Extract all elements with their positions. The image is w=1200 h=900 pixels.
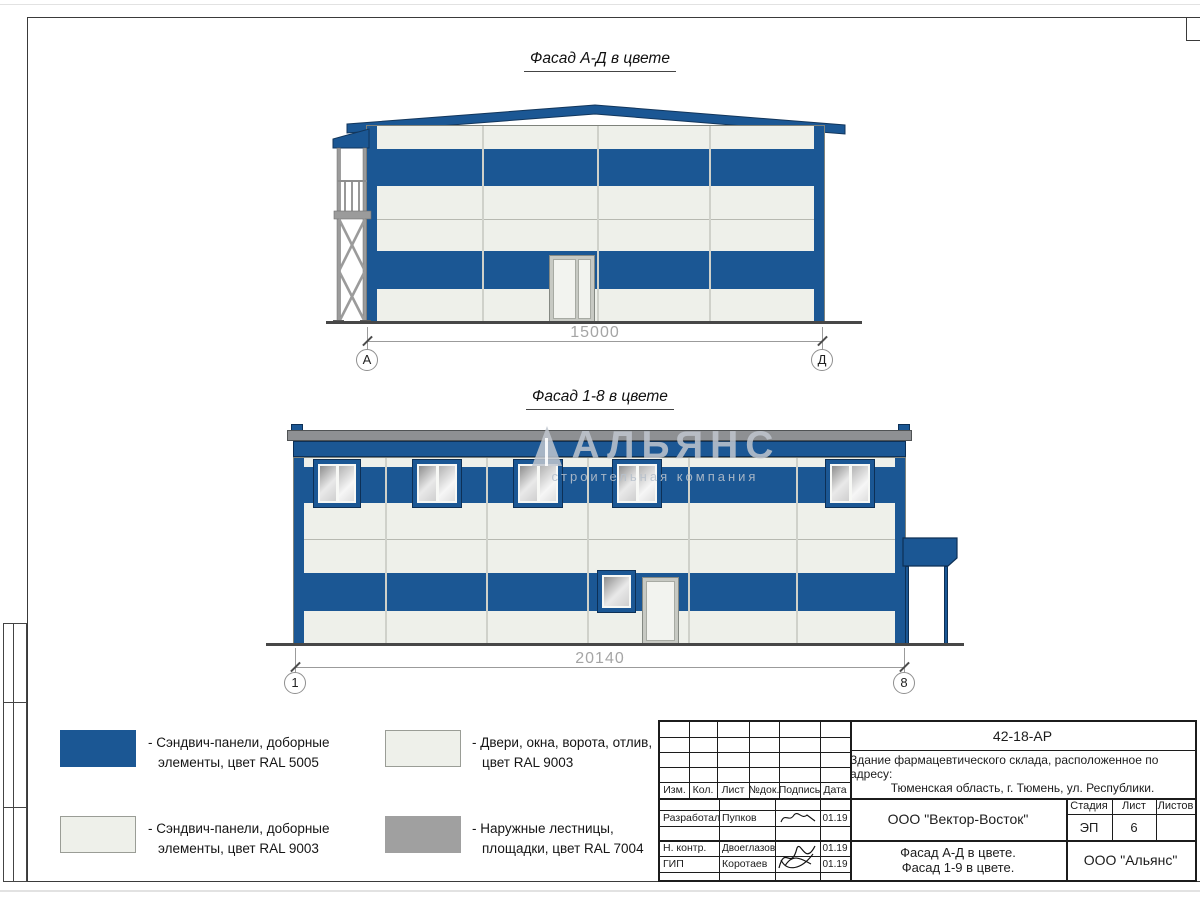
door-leaf xyxy=(646,581,675,641)
axis-bubble-a: А xyxy=(356,349,378,371)
tb-header-data: Дата xyxy=(820,782,850,798)
title-block: Изм. Кол. Лист №док. Подпись Дата Разраб… xyxy=(658,720,1197,882)
tb-project-line2: Тюменская область, г. Тюмень, ул. Респуб… xyxy=(891,781,1155,795)
tb-sheet-header: Лист xyxy=(1112,798,1156,814)
dimension-value: 20140 xyxy=(525,650,675,668)
panel-stripe-blue xyxy=(367,251,824,289)
legend-item: - Сэндвич-панели, доборные элементы, цве… xyxy=(148,733,343,772)
tb-role-ncontr: Н. контр. xyxy=(660,840,719,856)
tb-date-developed: 01.19 xyxy=(820,810,850,826)
legend-swatch-ral5005 xyxy=(60,730,136,767)
legend-swatch-ral7004 xyxy=(385,816,461,853)
panel-joint xyxy=(486,458,488,644)
tb-date-ncontr: 01.19 xyxy=(820,840,850,856)
window xyxy=(412,459,462,508)
axis-bubble-8: 8 xyxy=(893,672,915,694)
tb-date-gip: 01.19 xyxy=(820,856,850,872)
extension-line xyxy=(295,648,296,675)
tb-stage-value: ЭП xyxy=(1066,814,1112,840)
drawing-sheet: Фасад А-Д в цвете xyxy=(0,0,1200,900)
legend-item: - Наружные лестницы, площадки, цвет RAL … xyxy=(472,819,672,858)
page-edge-bottom xyxy=(0,890,1200,892)
tb-org-customer: ООО "Альянс" xyxy=(1066,840,1195,880)
panel-joint xyxy=(709,126,711,322)
facade-18-wall xyxy=(293,457,906,645)
panel-joint xyxy=(482,126,484,322)
tb-stage-header: Стадия xyxy=(1066,798,1112,814)
tb-sheets-value xyxy=(1156,814,1195,840)
signature xyxy=(777,810,820,826)
door-leaf xyxy=(553,259,576,319)
tb-project-line1: Здание фармацевтического склада, располо… xyxy=(850,753,1195,781)
canopy-post xyxy=(905,566,909,645)
legend-item: - Сэндвич-панели, доборные элементы, цве… xyxy=(148,819,343,858)
tb-header-podpis: Подпись xyxy=(779,782,820,798)
stair-tower xyxy=(329,126,375,328)
tb-org-contractor: ООО "Вектор-Восток" xyxy=(850,798,1066,840)
tb-drawing-title-line1: Фасад А-Д в цвете. xyxy=(900,845,1016,860)
tb-name-ncontr: Двоеглазов xyxy=(719,840,775,856)
side-stamp xyxy=(3,623,27,882)
tb-project: Здание фармацевтического склада, располо… xyxy=(850,750,1195,798)
window xyxy=(825,459,875,508)
tb-drawing-title-line2: Фасад 1-9 в цвете. xyxy=(902,860,1015,875)
tb-name-gip: Коротаев xyxy=(719,856,775,872)
panel-stripe-blue xyxy=(367,149,824,186)
tb-header-izm: Изм. xyxy=(660,782,689,798)
tb-header-ndok: №док. xyxy=(749,782,779,798)
tb-header-kol: Кол. xyxy=(689,782,717,798)
frame-corner-box xyxy=(1186,18,1200,41)
door-leaf xyxy=(578,259,591,319)
window xyxy=(313,459,361,508)
panel-joint xyxy=(385,458,387,644)
tb-doc-number: 42-18-АР xyxy=(850,722,1195,750)
window xyxy=(513,459,563,508)
corner-trim xyxy=(294,458,304,644)
tb-drawing-title: Фасад А-Д в цвете. Фасад 1-9 в цвете. xyxy=(850,840,1066,880)
tb-sheets-header: Листов xyxy=(1156,798,1195,814)
signature xyxy=(773,840,820,876)
window-small xyxy=(597,570,636,613)
panel-joint xyxy=(367,219,824,220)
entrance-door-double xyxy=(549,255,595,323)
panel-joint xyxy=(796,458,798,644)
panel-joint xyxy=(587,458,589,644)
tb-header-list: Лист xyxy=(717,782,749,798)
facade-ad-wall xyxy=(366,125,825,323)
panel-joint xyxy=(688,458,690,644)
facade-ad-title: Фасад А-Д в цвете xyxy=(450,50,750,72)
axis-bubble-1: 1 xyxy=(284,672,306,694)
tb-sheet-value: 6 xyxy=(1112,814,1156,840)
entrance-door xyxy=(642,577,679,645)
legend-swatch-doors xyxy=(385,730,461,767)
legend-swatch-ral9003 xyxy=(60,816,136,853)
legend-item: - Двери, окна, ворота, отлив, цвет RAL 9… xyxy=(472,733,672,772)
canopy-post xyxy=(944,566,948,645)
roof-coping xyxy=(287,430,912,441)
window xyxy=(612,459,662,508)
dimension-value: 15000 xyxy=(520,324,670,342)
fascia-band xyxy=(293,441,906,457)
tb-role-gip: ГИП xyxy=(660,856,719,872)
panel-joint xyxy=(597,126,599,322)
page-edge-top xyxy=(0,4,1200,5)
ground-line xyxy=(266,643,964,646)
tb-role-developed: Разработал xyxy=(660,810,719,826)
corner-trim xyxy=(814,126,824,322)
tb-name-developed: Пупков xyxy=(719,810,775,826)
extension-line xyxy=(904,648,905,675)
facade-18-title: Фасад 1-8 в цвете xyxy=(450,388,750,410)
canopy xyxy=(901,536,961,570)
axis-bubble-d: Д xyxy=(811,349,833,371)
